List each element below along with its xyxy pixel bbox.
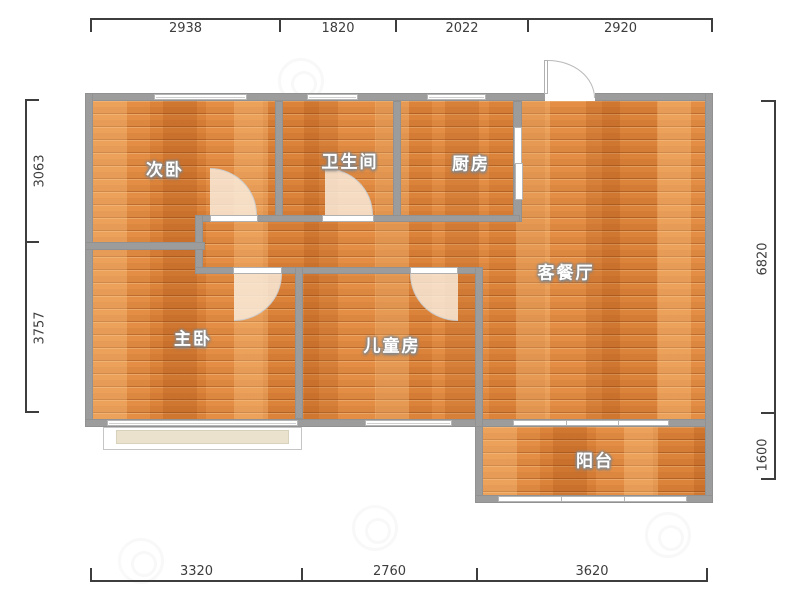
dim-tick: [761, 412, 775, 414]
dim-label-top-1: 2938: [91, 21, 280, 36]
dim-label-left-2: 3757: [33, 311, 48, 344]
window-master-bedroom: [107, 420, 298, 426]
sliding-door-kitchen-upper: [514, 127, 522, 164]
dim-label-top-2: 1820: [280, 21, 396, 36]
door-leaf-bathroom: [322, 215, 374, 222]
dim-tick: [761, 478, 775, 480]
window-secondary-bedroom: [154, 94, 247, 100]
wall-master-children-divider: [295, 267, 303, 419]
wall-outer-right: [705, 93, 713, 503]
wall-bathroom-kitchen-divider: [393, 101, 401, 222]
dim-label-right-2: 1600: [756, 438, 771, 471]
door-leaf-secondary-bedroom: [210, 215, 258, 222]
sliding-door-divider: [618, 421, 619, 425]
dim-tick: [25, 241, 39, 243]
dim-label-top-4: 2920: [528, 21, 713, 36]
wall-bedroom-bathroom-divider: [275, 101, 283, 222]
window-children-room: [365, 420, 452, 426]
dim-label-bottom-3: 3620: [477, 564, 707, 579]
dim-label-top-3: 2022: [396, 21, 528, 36]
wall-children-living-divider: [475, 267, 483, 427]
bay-window-sill: [116, 430, 289, 444]
room-label-master-bedroom: 主卧: [174, 325, 212, 350]
sliding-door-kitchen-lower: [515, 163, 523, 200]
room-label-kitchen: 厨房: [452, 150, 490, 175]
window-balcony: [498, 496, 687, 502]
room-label-bathroom: 卫生间: [322, 148, 379, 173]
dim-line: [91, 580, 708, 582]
dim-line: [91, 18, 713, 20]
dim-tick: [761, 100, 775, 102]
floor-plan-canvas: 次卧 卫生间 厨房 客餐厅 主卧 儿童房 阳台 2938 1820 2022 2…: [0, 0, 800, 600]
sliding-door-balcony: [513, 420, 669, 426]
door-leaf-children-room: [410, 267, 458, 274]
window-divider: [561, 497, 562, 501]
wall-balcony-left: [475, 419, 483, 503]
window-divider: [624, 497, 625, 501]
dim-tick: [25, 411, 39, 413]
dim-tick: [25, 99, 39, 101]
dim-line: [25, 99, 27, 413]
door-leaf-master-bedroom: [233, 267, 282, 274]
room-label-balcony: 阳台: [576, 447, 614, 472]
dim-label-bottom-1: 3320: [91, 564, 302, 579]
room-label-living-dining: 客餐厅: [538, 259, 595, 284]
sliding-door-divider: [566, 421, 567, 425]
window-bathroom: [307, 94, 358, 100]
dim-label-right-1: 6820: [756, 242, 771, 275]
dim-label-bottom-2: 2760: [302, 564, 477, 579]
watermark-icon: [645, 512, 691, 558]
room-label-children-room: 儿童房: [364, 332, 421, 357]
watermark-icon: [352, 505, 398, 551]
wall-outer-left: [85, 93, 93, 427]
entry-door-swing-arc: [548, 60, 595, 98]
wall-bedrooms-divider-left: [85, 242, 205, 250]
dim-line: [774, 100, 776, 480]
dim-label-left-1: 3063: [33, 154, 48, 187]
window-kitchen: [427, 94, 486, 100]
room-label-secondary-bedroom: 次卧: [146, 156, 184, 181]
